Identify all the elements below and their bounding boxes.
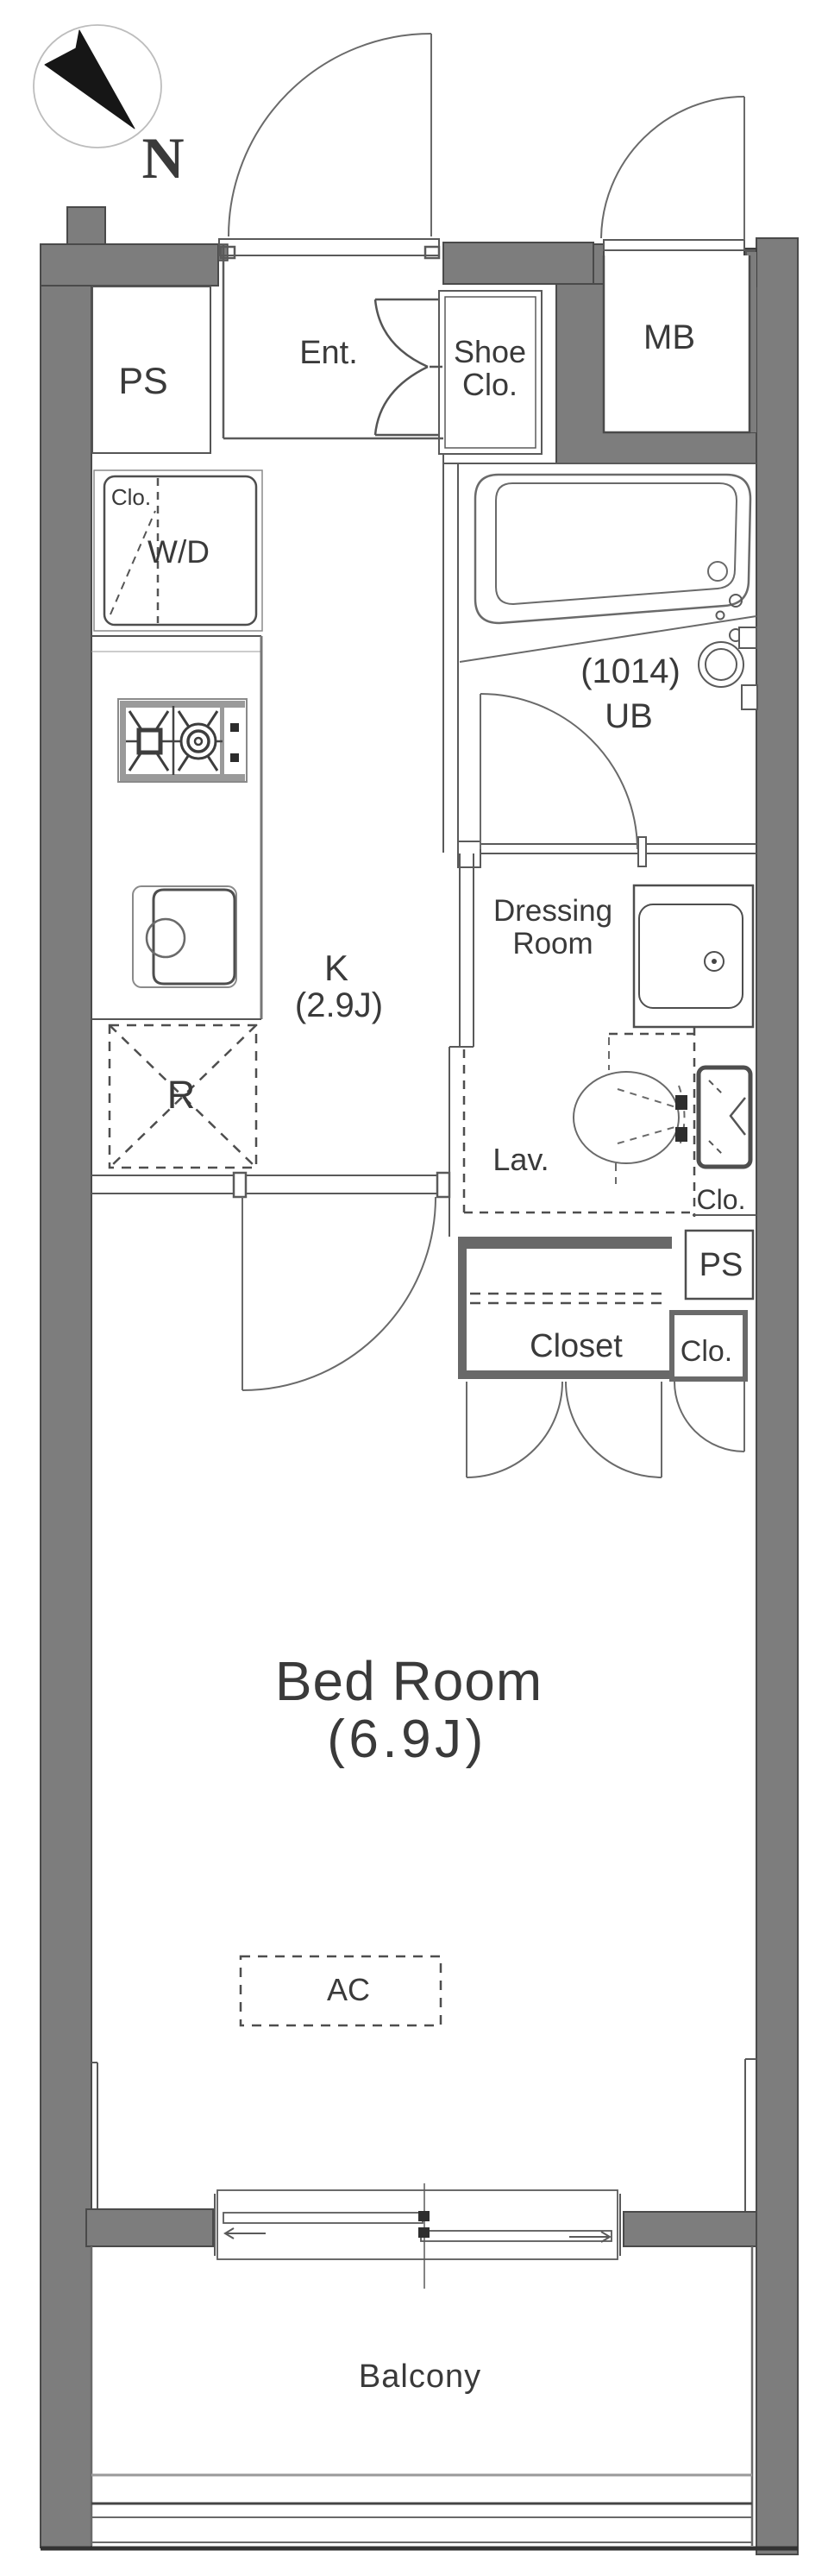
svg-text:K: K — [324, 948, 348, 988]
svg-text:Lav.: Lav. — [492, 1142, 549, 1177]
svg-text:MB: MB — [643, 318, 695, 356]
svg-text:Shoe: Shoe — [454, 334, 526, 369]
svg-text:UB: UB — [605, 697, 653, 735]
svg-text:R: R — [167, 1073, 196, 1117]
svg-text:PS: PS — [699, 1247, 743, 1283]
svg-text:Bed Room: Bed Room — [275, 1650, 543, 1712]
svg-text:Room: Room — [512, 927, 593, 960]
svg-text:Clo.: Clo. — [462, 367, 517, 402]
svg-text:(2.9J): (2.9J) — [295, 986, 383, 1024]
svg-text:PS: PS — [118, 361, 167, 402]
svg-text:Closet: Closet — [530, 1328, 623, 1364]
svg-text:Clo.: Clo. — [681, 1335, 732, 1368]
svg-text:(1014): (1014) — [580, 652, 681, 690]
svg-text:Clo.: Clo. — [111, 484, 151, 510]
svg-text:Dressing: Dressing — [493, 894, 612, 928]
svg-text:W/D: W/D — [147, 534, 210, 570]
svg-text:AC: AC — [327, 1972, 370, 2007]
svg-text:N: N — [141, 125, 184, 191]
svg-text:Ent.: Ent. — [299, 335, 358, 371]
svg-text:(6.9J): (6.9J) — [327, 1710, 486, 1769]
svg-text:Clo.: Clo. — [697, 1184, 746, 1215]
svg-text:Balcony: Balcony — [359, 2359, 481, 2395]
